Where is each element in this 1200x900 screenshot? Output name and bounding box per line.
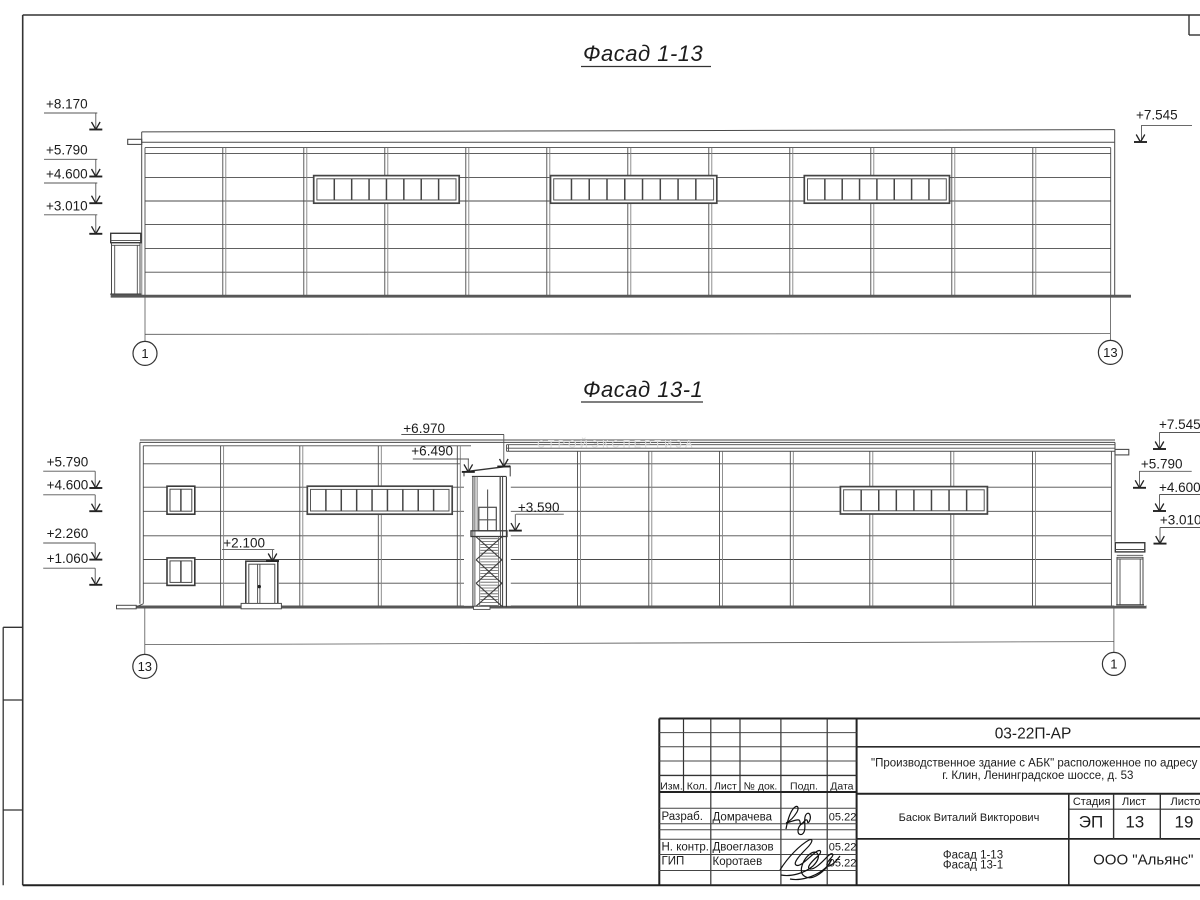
svg-text:Двоеглазов: Двоеглазов [713, 841, 774, 853]
svg-text:ГИП: ГИП [662, 856, 685, 868]
svg-text:СТРОЙЭКСПЕРТИЗА: СТРОЙЭКСПЕРТИЗА [537, 438, 696, 451]
svg-text:Басюк Виталий Викторович: Басюк Виталий Викторович [899, 812, 1040, 824]
svg-text:+4.600: +4.600 [46, 166, 88, 181]
svg-text:+4.600: +4.600 [1159, 480, 1200, 495]
svg-text:+7.545: +7.545 [1136, 108, 1178, 123]
svg-text:13: 13 [1103, 345, 1117, 360]
svg-text:+2.260: +2.260 [47, 526, 89, 541]
svg-text:+3.010: +3.010 [46, 199, 88, 214]
svg-text:ООО "Альянс": ООО "Альянс" [1093, 851, 1193, 868]
svg-text:+5.790: +5.790 [1141, 456, 1183, 471]
svg-text:Коротаев: Коротаев [713, 856, 763, 868]
svg-text:+8.170: +8.170 [46, 97, 88, 112]
svg-text:г. Клин, Ленинградское шоссе,: г. Клин, Ленинградское шоссе, д. 53 [942, 770, 1133, 782]
svg-text:Лист: Лист [1122, 796, 1146, 808]
svg-text:Разраб.: Разраб. [662, 811, 703, 823]
svg-text:+6.490: +6.490 [411, 443, 453, 458]
svg-text:Листов: Листов [1171, 796, 1200, 808]
svg-text:Н. контр.: Н. контр. [662, 841, 709, 853]
svg-text:+5.790: +5.790 [46, 143, 88, 158]
svg-text:+1.060: +1.060 [47, 551, 89, 566]
svg-text:+7.545: +7.545 [1159, 417, 1200, 432]
svg-text:+6.970: +6.970 [403, 421, 445, 436]
svg-text:Домрачева: Домрачева [713, 812, 773, 824]
svg-text:+5.790: +5.790 [47, 455, 89, 470]
svg-text:19: 19 [1175, 813, 1194, 832]
svg-text:05.22: 05.22 [829, 812, 857, 824]
svg-text:05.22: 05.22 [829, 841, 857, 853]
svg-text:Стадия: Стадия [1073, 796, 1111, 808]
svg-text:+4.600: +4.600 [47, 478, 89, 493]
svg-text:13: 13 [1125, 813, 1144, 832]
svg-text:1: 1 [1110, 657, 1117, 672]
svg-text:Фасад 13-1: Фасад 13-1 [583, 377, 703, 402]
svg-text:ЭП: ЭП [1079, 813, 1103, 832]
svg-text:+2.100: +2.100 [223, 535, 265, 550]
svg-text:Кол.: Кол. [687, 781, 708, 793]
svg-text:03-22П-АР: 03-22П-АР [995, 726, 1072, 743]
svg-text:+3.590: +3.590 [518, 500, 560, 515]
svg-text:Фасад 13-1: Фасад 13-1 [943, 860, 1003, 872]
svg-text:1: 1 [141, 346, 148, 361]
svg-text:Подп.: Подп. [790, 781, 818, 793]
svg-text:"Производственное здание с АБК: "Производственное здание с АБК" располож… [871, 757, 1198, 769]
svg-text:№ док.: № док. [744, 781, 778, 793]
svg-text:13: 13 [138, 659, 152, 674]
svg-text:+3.010: +3.010 [1160, 513, 1200, 528]
svg-text:Изм.: Изм. [660, 781, 683, 793]
svg-text:Фасад 1-13: Фасад 1-13 [583, 41, 704, 66]
svg-text:Дата: Дата [830, 781, 853, 793]
svg-text:Лист: Лист [714, 781, 737, 793]
